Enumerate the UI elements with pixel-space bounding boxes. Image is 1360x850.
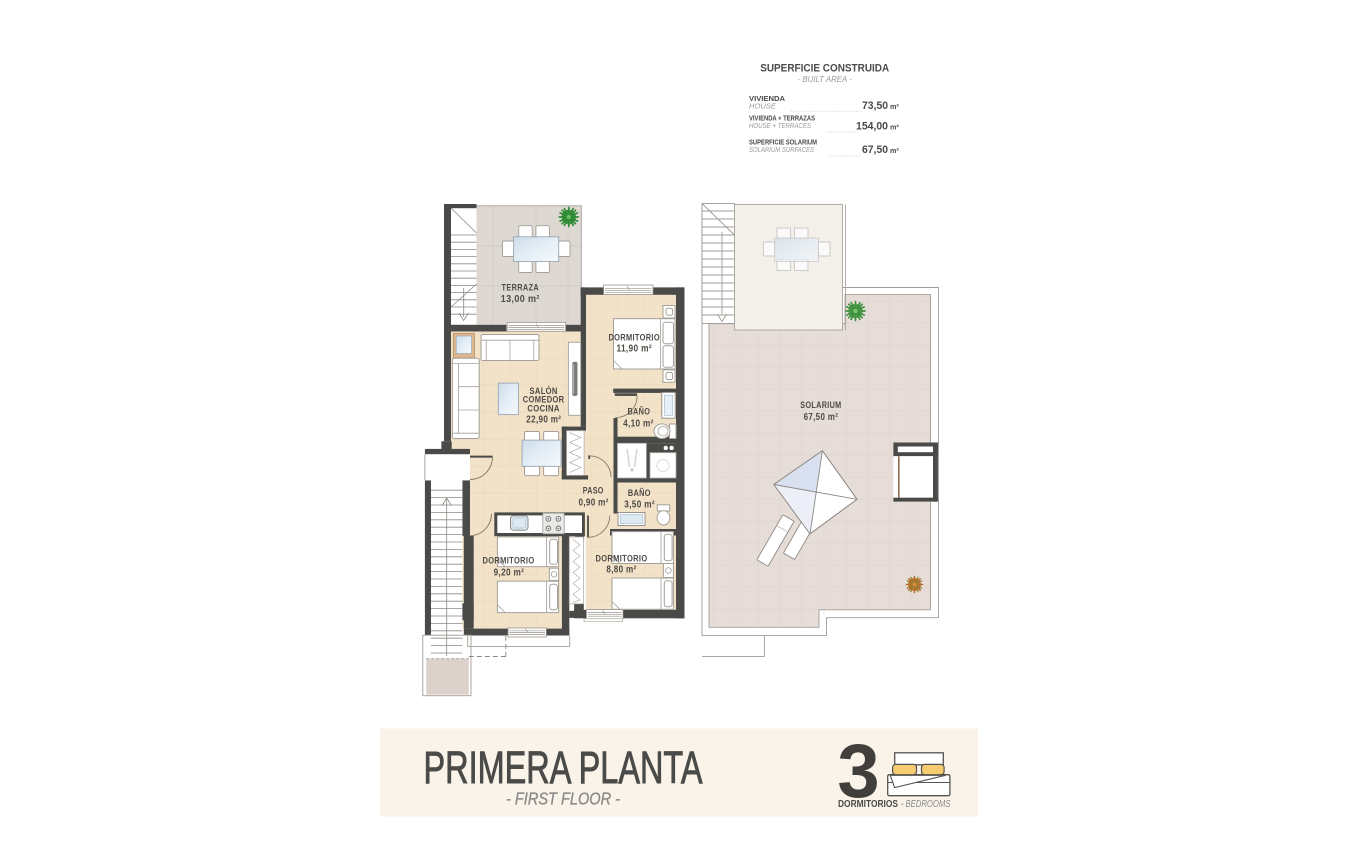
- svg-text:BEDROOMS: BEDROOMS: [906, 799, 951, 810]
- svg-text:13,00 m²: 13,00 m²: [501, 294, 540, 305]
- svg-text:DORMITORIO: DORMITORIO: [608, 333, 660, 343]
- svg-text:67,50: 67,50: [862, 144, 888, 156]
- svg-text:3,50 m²: 3,50 m²: [624, 499, 655, 510]
- svg-text:m²: m²: [890, 122, 899, 131]
- svg-text:67,50 m²: 67,50 m²: [804, 412, 839, 423]
- svg-text:DORMITORIO: DORMITORIO: [483, 556, 535, 566]
- svg-text:BAÑO: BAÑO: [627, 407, 650, 417]
- svg-text:11,90 m²: 11,90 m²: [616, 343, 652, 354]
- svg-text:0,90 m²: 0,90 m²: [579, 497, 609, 508]
- svg-text:- FIRST FLOOR -: - FIRST FLOOR -: [506, 789, 620, 809]
- svg-text:154,00: 154,00: [856, 120, 888, 132]
- svg-text:COCINA: COCINA: [527, 403, 560, 413]
- svg-text:m²: m²: [890, 102, 899, 111]
- svg-text:DORMITORIO: DORMITORIO: [596, 554, 648, 564]
- svg-text:HOUSE: HOUSE: [749, 102, 777, 111]
- svg-text:-: -: [901, 799, 904, 810]
- svg-text:TERRAZA: TERRAZA: [502, 282, 540, 292]
- svg-text:PASO: PASO: [583, 485, 604, 495]
- svg-text:SOLARIUM SURFACES: SOLARIUM SURFACES: [749, 145, 814, 154]
- svg-text:4,10 m²: 4,10 m²: [623, 418, 654, 429]
- svg-text:m²: m²: [890, 146, 899, 155]
- svg-text:SOLARIUM: SOLARIUM: [800, 400, 841, 410]
- svg-text:SUPERFICIE CONSTRUIDA: SUPERFICIE CONSTRUIDA: [760, 62, 889, 74]
- svg-text:- BUILT AREA -: - BUILT AREA -: [798, 74, 852, 84]
- svg-text:BAÑO: BAÑO: [628, 488, 651, 498]
- svg-text:PRIMERA PLANTA: PRIMERA PLANTA: [424, 742, 703, 793]
- svg-text:HOUSE + TERRACES: HOUSE + TERRACES: [749, 121, 811, 130]
- svg-text:22,90 m²: 22,90 m²: [526, 415, 561, 426]
- svg-text:73,50: 73,50: [862, 100, 888, 112]
- svg-text:8,80 m²: 8,80 m²: [606, 565, 636, 576]
- svg-text:9,20 m²: 9,20 m²: [494, 568, 525, 579]
- svg-text:DORMITORIOS: DORMITORIOS: [838, 799, 898, 810]
